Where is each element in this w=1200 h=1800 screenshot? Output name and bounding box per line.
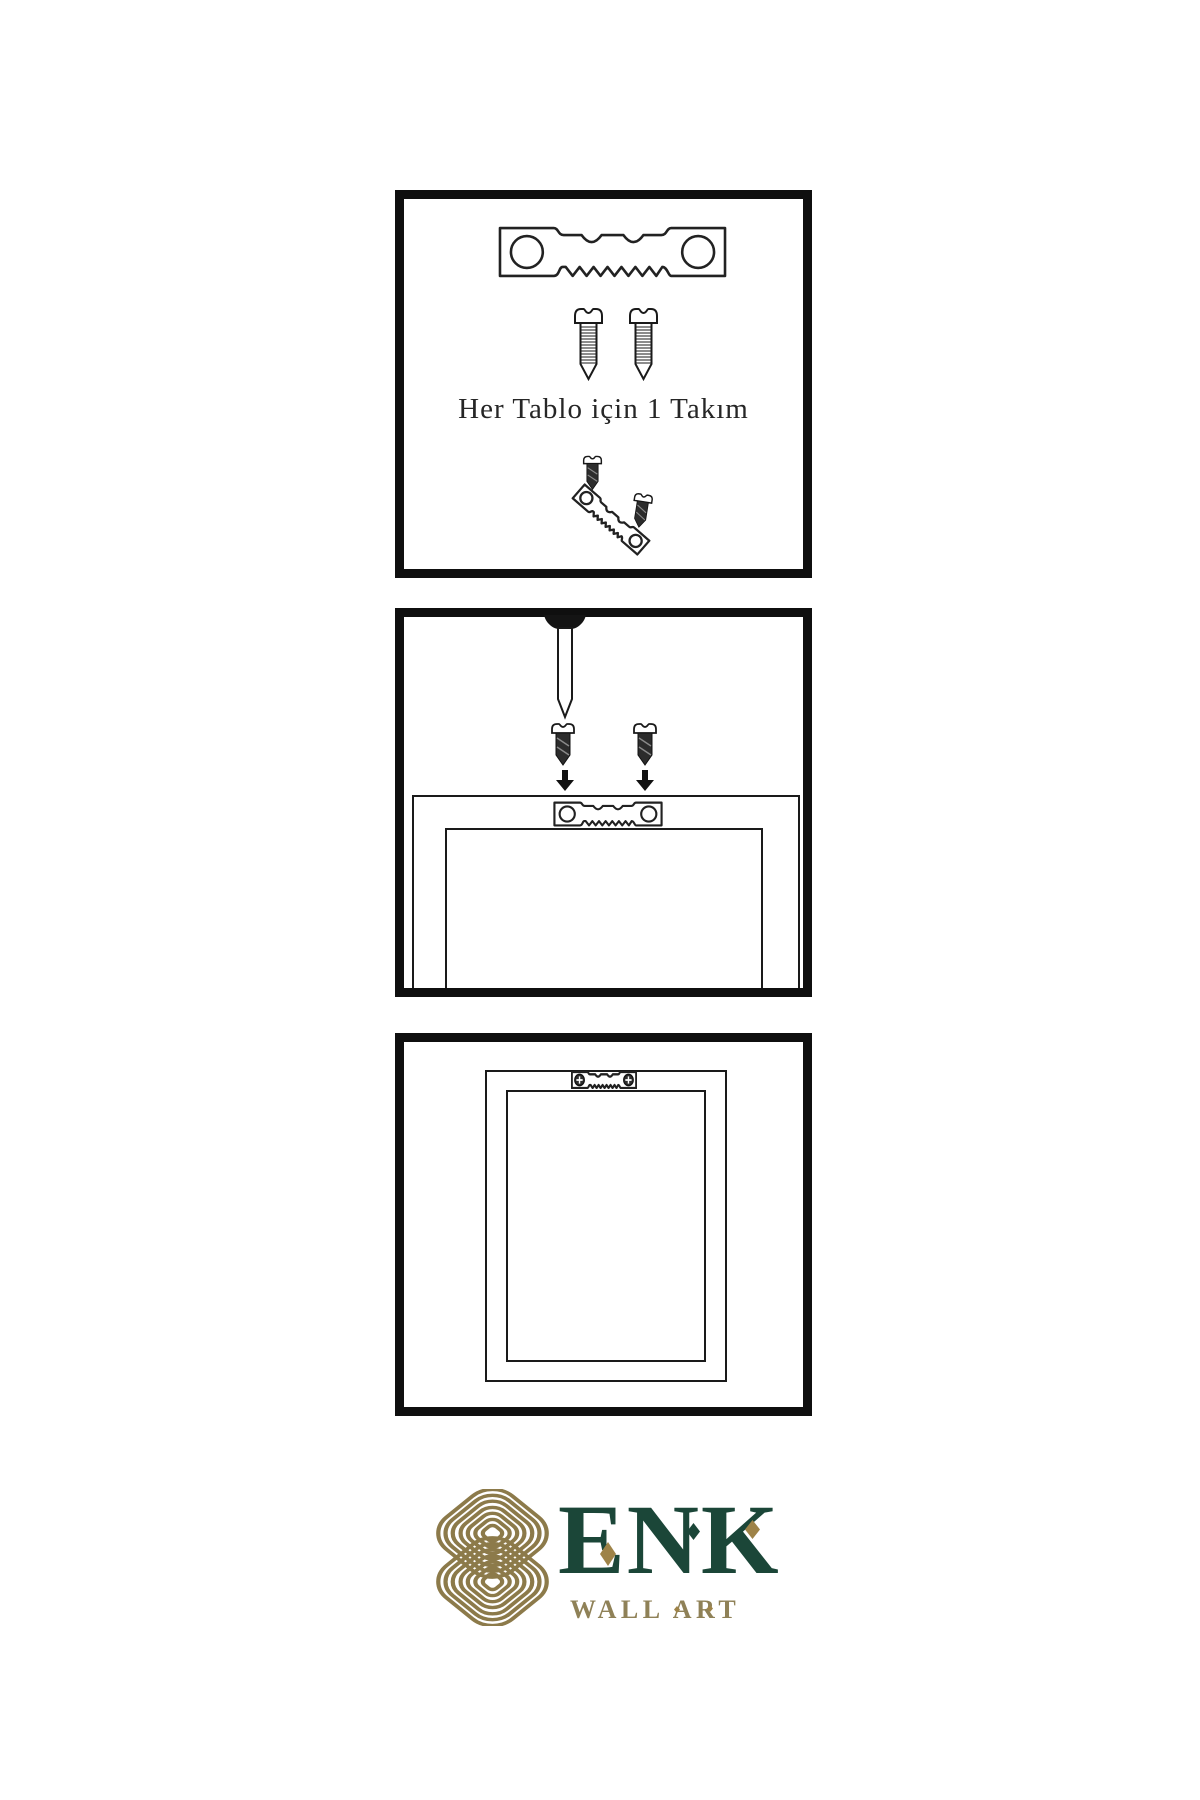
- knot-logo-icon: [436, 1489, 549, 1626]
- arrow-down-icon: [555, 770, 575, 791]
- screw-icon: [627, 306, 660, 381]
- sawtooth-hanger-icon: [553, 801, 663, 827]
- kit-caption: Her Tablo için 1 Takım: [404, 393, 803, 426]
- brand-logo: ENK WALL ART: [430, 1487, 810, 1637]
- screw-dark-icon: [632, 721, 658, 767]
- screw-icon: [572, 306, 605, 381]
- panel-mounting-step: [395, 608, 812, 997]
- logo-wordmark: ENK: [558, 1490, 781, 1590]
- logo-subtitle: WALL ART: [570, 1595, 740, 1625]
- frame-back-inner-outline: [445, 828, 763, 988]
- sawtooth-hanger-icon: [497, 225, 728, 279]
- frame-back-inner-outline: [506, 1090, 706, 1362]
- mounted-hanger-icon: [571, 1071, 637, 1089]
- screw-dark-icon: [627, 490, 656, 530]
- arrow-down-icon: [635, 770, 655, 791]
- instruction-sheet: Her Tablo için 1 Takım: [0, 0, 1200, 1800]
- frame-back-outline: [485, 1070, 727, 1382]
- panel-hardware-kit: Her Tablo için 1 Takım: [395, 190, 812, 578]
- panel-hanging-step: [395, 1033, 812, 1416]
- screw-dark-icon: [550, 721, 576, 767]
- nail-icon: [543, 615, 587, 721]
